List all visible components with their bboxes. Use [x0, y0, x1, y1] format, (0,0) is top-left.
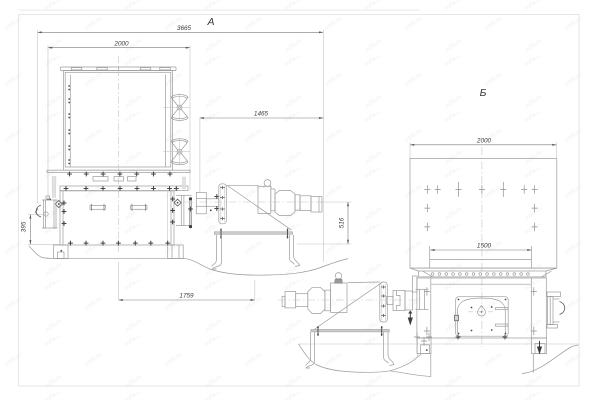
- svg-text:1465: 1465: [254, 111, 269, 118]
- svg-text:395: 395: [21, 221, 28, 232]
- svg-text:А: А: [206, 16, 214, 28]
- svg-text:2000: 2000: [476, 138, 492, 145]
- svg-text:Б: Б: [480, 87, 487, 99]
- svg-text:1500: 1500: [477, 243, 492, 250]
- svg-text:2000: 2000: [113, 41, 129, 48]
- svg-text:516: 516: [339, 217, 346, 228]
- svg-text:3665: 3665: [177, 25, 192, 32]
- svg-text:1759: 1759: [179, 293, 194, 300]
